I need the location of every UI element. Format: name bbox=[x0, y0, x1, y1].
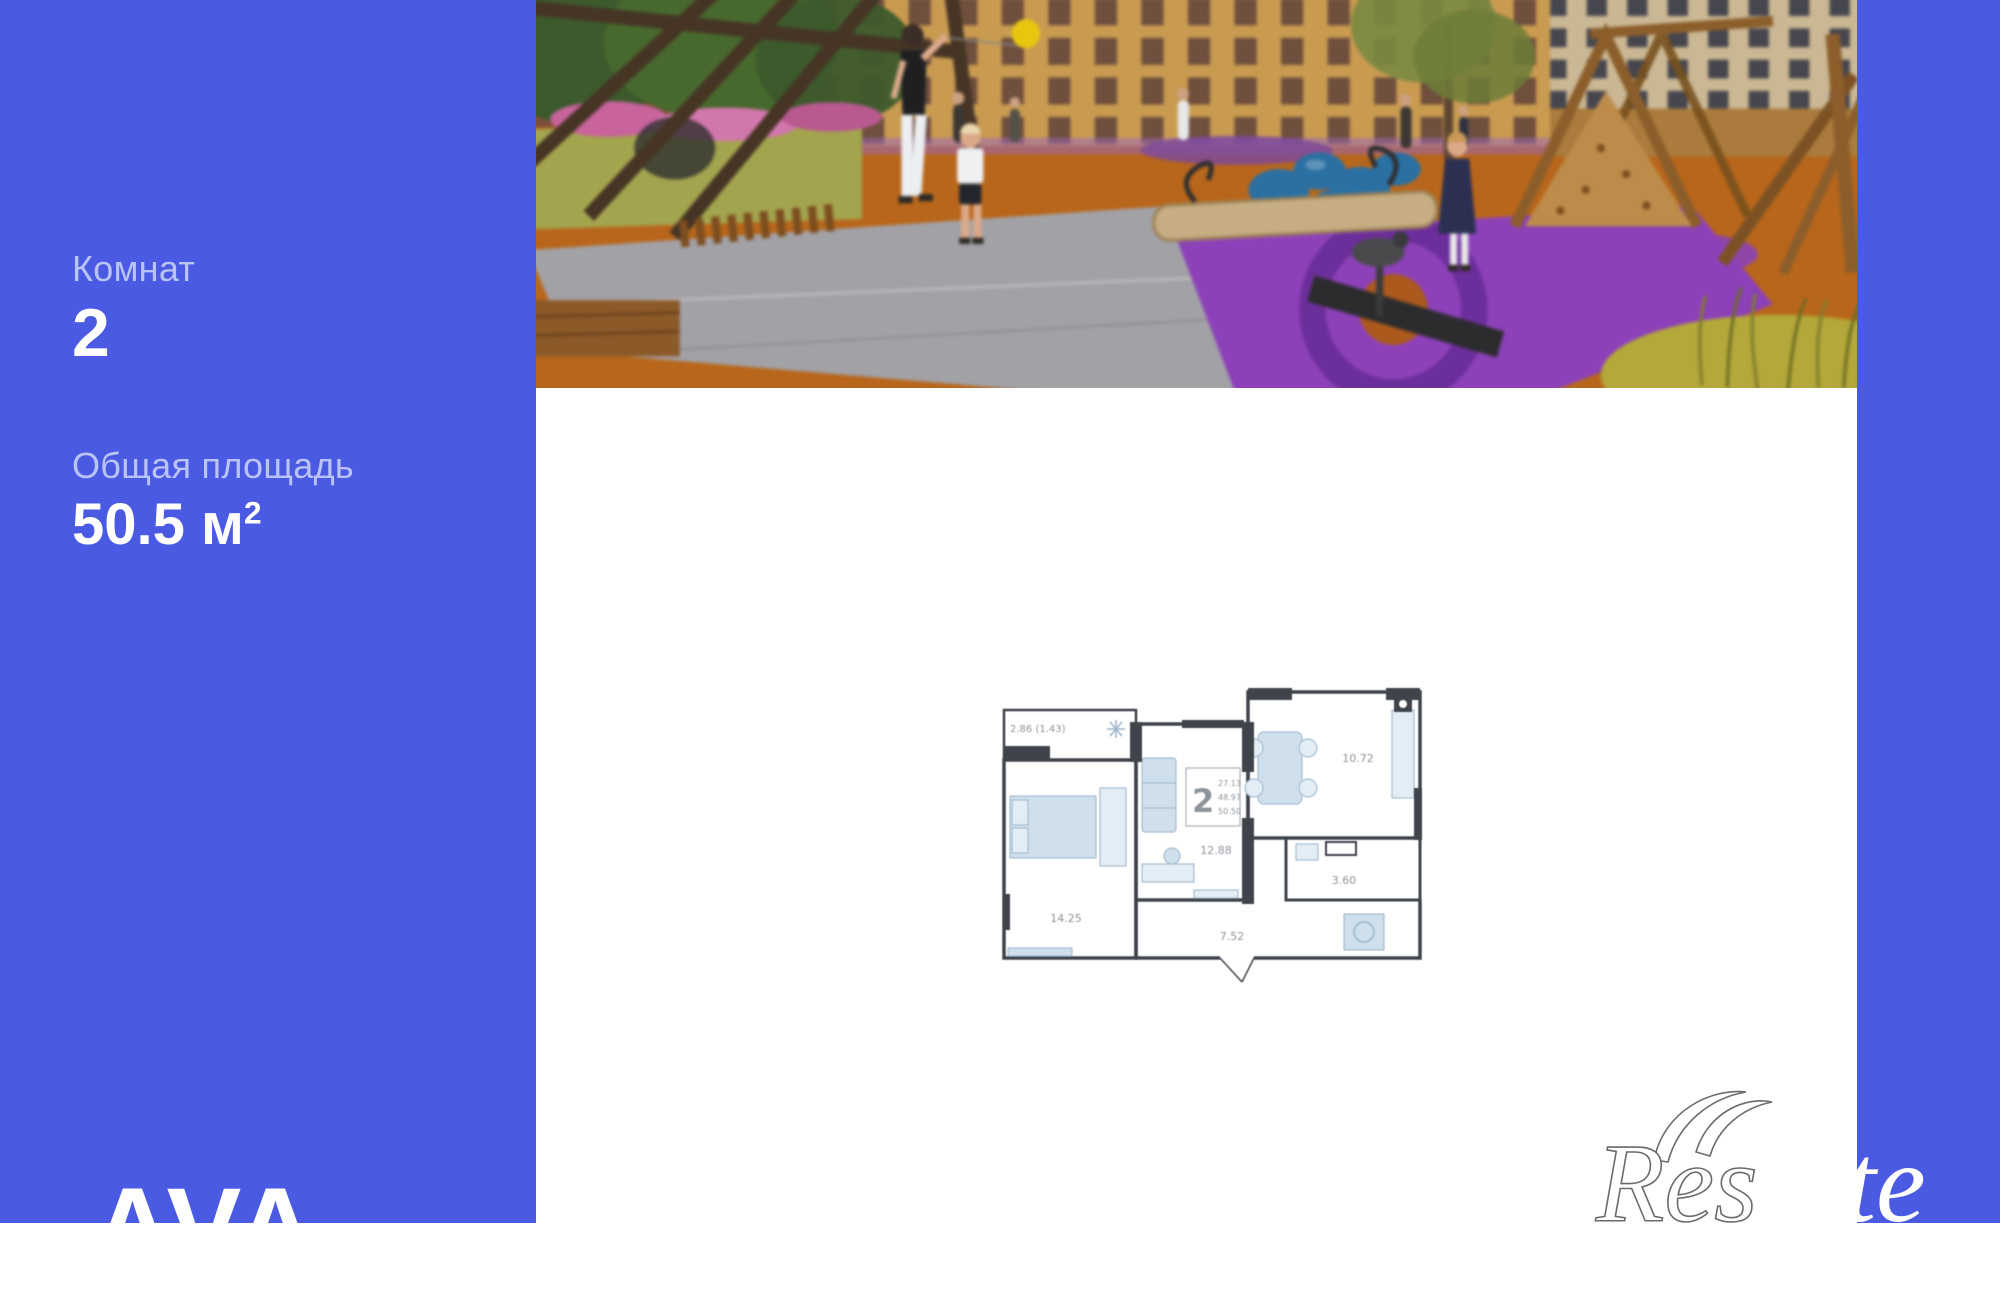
area-value-number: 50.5 м bbox=[72, 492, 244, 557]
toilet bbox=[1296, 844, 1318, 860]
floor-plan-drawing: 2.86 (1.43) 14.25 12.88 2 27.13 48.97 50… bbox=[996, 664, 1432, 990]
courtyard-photo bbox=[536, 0, 1857, 388]
bath-sink bbox=[1326, 842, 1356, 855]
area-value: 50.5 м2 bbox=[72, 495, 354, 556]
wardrobe bbox=[1100, 788, 1126, 866]
kitchen-counter bbox=[1392, 710, 1414, 798]
bathroom-area-label: 3.60 bbox=[1332, 874, 1357, 887]
area-label: Общая площадь bbox=[72, 445, 354, 487]
area-fact: Общая площадь 50.5 м2 bbox=[72, 445, 354, 556]
sofa bbox=[1142, 758, 1176, 832]
ava-logo: AVA bbox=[92, 1172, 318, 1284]
living-area-label: 12.88 bbox=[1200, 844, 1232, 857]
plan-stat-1: 27.13 bbox=[1218, 779, 1241, 788]
rooms-label: Комнат bbox=[72, 248, 195, 290]
plan-type-badge: 2 27.13 48.97 50.50 bbox=[1186, 768, 1241, 826]
snowflake-icon bbox=[1107, 720, 1125, 738]
right-blue-strip bbox=[1857, 0, 2000, 1223]
plan-room-count: 2 bbox=[1192, 782, 1214, 820]
area-value-superscript: 2 bbox=[244, 495, 262, 531]
watermark-outline-text: Res bbox=[1596, 1122, 1758, 1246]
restate-watermark: Restate bbox=[1596, 1128, 1926, 1240]
plan-stat-2: 48.97 bbox=[1218, 793, 1241, 802]
watermark-solid-text: tate bbox=[1758, 1122, 1926, 1246]
kitchen-area-label: 10.72 bbox=[1342, 752, 1374, 765]
hallway-area-label: 7.52 bbox=[1220, 930, 1245, 943]
window-sill bbox=[1008, 948, 1072, 956]
courtyard-photo-art bbox=[536, 0, 1857, 388]
entry-door bbox=[1220, 958, 1254, 982]
rooms-value: 2 bbox=[72, 298, 195, 369]
tv-cabinet bbox=[1194, 890, 1238, 898]
chair bbox=[1164, 848, 1180, 864]
rooms-fact: Комнат 2 bbox=[72, 248, 195, 369]
balcony-area-label: 2.86 (1.43) bbox=[1010, 724, 1066, 735]
bedroom-area-label: 14.25 bbox=[1050, 912, 1082, 925]
dining-table bbox=[1258, 732, 1302, 804]
floor-plan: 2.86 (1.43) 14.25 12.88 2 27.13 48.97 50… bbox=[996, 664, 1432, 990]
washer bbox=[1344, 914, 1384, 950]
plan-stat-3: 50.50 bbox=[1218, 807, 1241, 816]
sidebar: Комнат 2 Общая площадь 50.5 м2 AVA bbox=[0, 0, 536, 1223]
desk bbox=[1142, 864, 1194, 882]
